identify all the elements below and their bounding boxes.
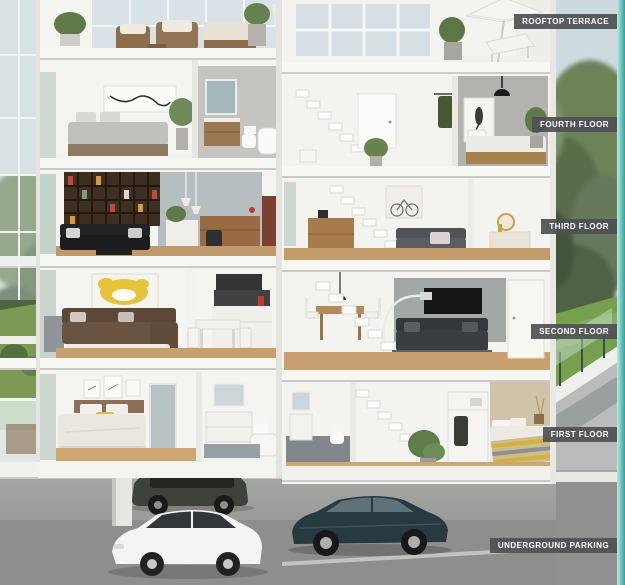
mirror-door [150, 384, 176, 450]
rooftop-plant-right [244, 3, 270, 25]
dark-sofa-2f [396, 318, 488, 352]
bicycle-poster [386, 186, 422, 218]
third-floor-left [40, 172, 278, 256]
black-sofa [60, 224, 150, 250]
floor-label-rooftop-terrace[interactable]: ROOFTOP TERRACE [514, 14, 617, 29]
coffee-table [96, 250, 132, 255]
floor-label-underground-parking[interactable]: UNDERGROUND PARKING [490, 538, 617, 553]
media-cabinet [44, 316, 64, 352]
bath-mat [204, 444, 260, 458]
right-building [282, 0, 556, 484]
bedroom-1f-right [490, 382, 554, 467]
building-section-page: ROOFTOP TERRACE FOURTH FLOOR THIRD FLOOR… [0, 0, 625, 585]
open-wardrobe [448, 392, 488, 464]
floor-label-fourth-floor[interactable]: FOURTH FLOOR [532, 117, 617, 132]
stool [300, 150, 316, 162]
range-hood [216, 274, 262, 290]
plant [364, 138, 388, 158]
left-building [0, 0, 284, 478]
plant [166, 206, 186, 222]
floor-label-second-floor[interactable]: SECOND FLOOR [531, 324, 617, 339]
floor-label-third-floor[interactable]: THIRD FLOOR [541, 219, 617, 234]
dining-table [196, 320, 240, 329]
dark-suv [130, 472, 254, 515]
rooftop-plant-left [54, 12, 86, 36]
mirror [206, 80, 236, 114]
building-cross-section-illustration [0, 0, 625, 585]
floor-label-first-floor[interactable]: FIRST FLOOR [543, 427, 617, 442]
bookshelf [64, 172, 160, 226]
bathtub [258, 128, 278, 154]
dining-chair [188, 328, 199, 348]
wall-tv [424, 288, 482, 314]
accent-stripe [617, 0, 625, 585]
toilet [256, 416, 268, 424]
bathroom-4f [198, 66, 278, 160]
dining-chair [240, 328, 251, 348]
hanging-jacket [438, 96, 454, 128]
terrace-plant [439, 17, 465, 43]
plant [169, 98, 195, 126]
kitchen-island [166, 220, 198, 250]
toilet [244, 126, 256, 134]
